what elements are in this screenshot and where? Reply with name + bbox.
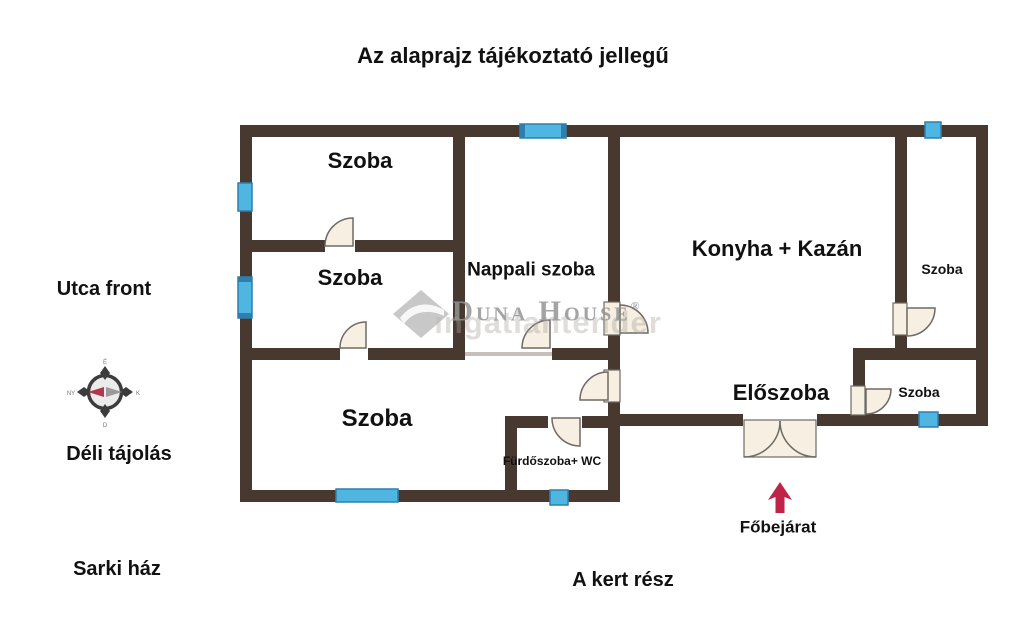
compass-icon: É D NY K	[67, 359, 140, 429]
label-utca-front: Utca front	[57, 279, 151, 299]
wall-segment	[976, 125, 988, 426]
compass-label-e: K	[136, 391, 140, 397]
door-leaf	[851, 386, 865, 415]
page-title: Az alaprajz tájékoztató jellegű	[357, 45, 669, 67]
door-swing	[907, 308, 935, 336]
door-swing	[522, 320, 550, 348]
entrance-double-door	[744, 420, 816, 457]
compass-label-n: É	[103, 359, 107, 366]
wall-segment	[240, 348, 340, 360]
window	[238, 277, 252, 318]
label-fobejarat: Főbejárat	[740, 519, 817, 536]
wall-segment	[453, 137, 465, 360]
window-cap	[520, 124, 525, 138]
floorplan-svg: É D NY K	[0, 0, 1024, 626]
door-swing	[552, 418, 580, 446]
room-label-szoba-mid-left: Szoba	[318, 267, 383, 289]
room-label-szoba-right-small: Szoba	[898, 385, 939, 399]
window	[520, 124, 566, 138]
wall-segment	[895, 137, 907, 305]
wall-segment	[552, 348, 620, 360]
room-label-furdoszoba: Fürdőszoba+ WC	[503, 455, 601, 467]
wall-segment	[582, 416, 608, 428]
wall-segment	[355, 240, 465, 252]
door-swing	[580, 372, 608, 400]
compass-label-s: D	[103, 423, 108, 429]
wall-segment	[853, 348, 865, 387]
wall-segment	[368, 348, 465, 360]
door-swing	[620, 305, 648, 333]
door-swing	[866, 389, 891, 414]
label-sarki-haz: Sarki ház	[73, 559, 161, 579]
entrance-arrow-icon	[768, 482, 792, 513]
floorplan-page: ingatlantender Duna House®	[0, 0, 1024, 626]
compass-label-w: NY	[67, 391, 75, 397]
door-leaf	[604, 302, 620, 335]
window	[550, 490, 568, 505]
room-label-nappali: Nappali szoba	[467, 261, 595, 280]
door-leaf	[893, 303, 907, 335]
window-cap	[238, 313, 252, 318]
wall-segment	[608, 137, 620, 305]
window-cap	[238, 277, 252, 282]
label-kert-resz: A kert rész	[572, 570, 674, 590]
wall-segment	[608, 414, 743, 426]
window	[925, 122, 941, 138]
room-label-konyha: Konyha + Kazán	[692, 238, 863, 260]
window	[919, 412, 938, 427]
label-deli-tajolas: Déli tájolás	[66, 444, 172, 464]
windows	[238, 122, 941, 505]
door-swing	[340, 322, 366, 348]
door-swing	[325, 218, 353, 246]
room-label-szoba-bottom-left: Szoba	[342, 407, 413, 431]
window-cap	[561, 124, 566, 138]
room-label-eloszoba: Előszoba	[733, 382, 830, 404]
wall-segment	[853, 348, 988, 360]
threshold-line	[465, 352, 552, 356]
window	[336, 489, 398, 502]
wall-segment	[608, 400, 620, 502]
window	[238, 183, 252, 211]
wall-segment	[240, 240, 325, 252]
wall-segment	[240, 125, 988, 137]
room-label-szoba-top-left: Szoba	[328, 150, 393, 172]
wall-segment	[817, 414, 988, 426]
room-label-szoba-right-tall: Szoba	[921, 262, 962, 276]
